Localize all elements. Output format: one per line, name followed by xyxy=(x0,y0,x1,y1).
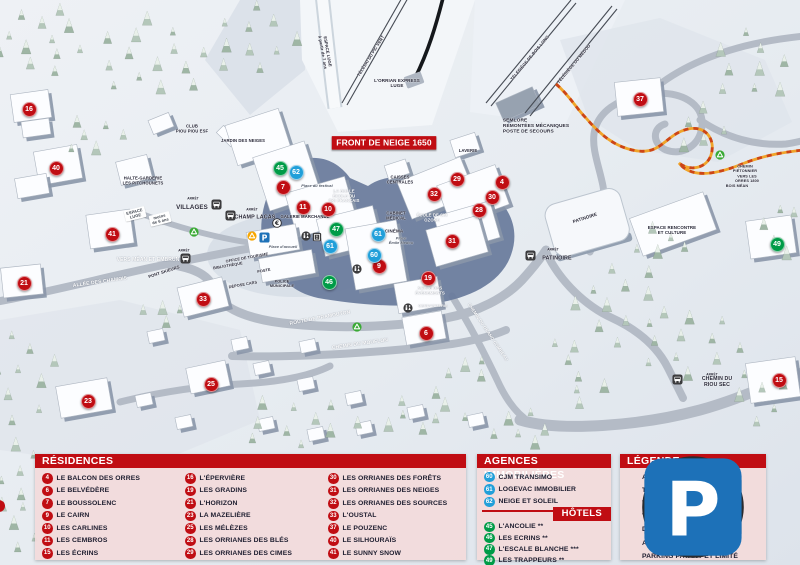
resort-map-poster: ESPACE LUGE à partir de 7 ansTÉLÉSKI DU … xyxy=(0,0,800,565)
legend-item-29: 29LES ORRIANES DES CIMES xyxy=(178,547,321,560)
marker-badge-19: 19 xyxy=(185,486,196,497)
marker-badge-29: 29 xyxy=(185,548,196,559)
legend-list: ARRET DE NAVETTETRI SELECTIFTRI SELECTIF… xyxy=(620,468,766,563)
legend-item-label: LES ÉCRINS xyxy=(57,550,99,557)
legend-item-21: 21L'HORIZON xyxy=(178,497,321,510)
legend-item-15: 15LES ÉCRINS xyxy=(35,547,178,560)
legend-item-23: 23LA MAZELIÈRE xyxy=(178,510,321,523)
legend-item-label: L'ÉPERVIÈRE xyxy=(200,475,246,482)
legend-item-label: LE SUNNY SNOW xyxy=(343,550,402,557)
legend-item-28: 28LES ORRIANES DES BLÉS xyxy=(178,535,321,548)
legend-item-label: LE BELVÉDÈRE xyxy=(57,487,110,494)
legend-item-label: LES MÉLÈZES xyxy=(200,525,248,532)
marker-badge-21: 21 xyxy=(185,498,196,509)
marker-badge-62: 62 xyxy=(484,497,495,508)
legend-item-label: L'ESCALE BLANCHE *** xyxy=(499,546,579,553)
legend-item-31: 31LES ORRIANES DES NEIGES xyxy=(321,485,464,498)
legend-item-47: 47L'ESCALE BLANCHE *** xyxy=(477,544,611,555)
legend-item-10: 10LES CARLINES xyxy=(35,522,178,535)
legend-item-label: LOGEVAC IMMOBILIER xyxy=(499,486,577,493)
legend-item-label: LES CEMBROS xyxy=(57,537,108,544)
marker-badge-60: 60 xyxy=(484,472,495,483)
legend-item-label: LES CARLINES xyxy=(57,525,108,532)
legend-item-30: 30LES ORRIANES DES FORÊTS xyxy=(321,472,464,485)
legend-panel: LÉGENDE ARRET DE NAVETTETRI SELECTIFTRI … xyxy=(620,454,766,560)
hotels-subheader: HÔTELS xyxy=(477,510,611,521)
hotels-title: HÔTELS xyxy=(553,507,611,521)
legend-item-37: 37LE POUZENC xyxy=(321,522,464,535)
legend-item-16: 16L'ÉPERVIÈRE xyxy=(178,472,321,485)
legend-item-6: 6LE BELVÉDÈRE xyxy=(35,485,178,498)
legend-item-41: 41LE SUNNY SNOW xyxy=(321,547,464,560)
marker-badge-11: 11 xyxy=(42,536,53,547)
residences-title: RÉSIDENCES xyxy=(35,454,466,468)
legend-item-19: 19LES GRADINS xyxy=(178,485,321,498)
legend-item-7: 7LE BOUSSOLENC xyxy=(35,497,178,510)
marker-badge-15: 15 xyxy=(42,548,53,559)
marker-badge-6: 6 xyxy=(42,486,53,497)
legend-item-45: 45L'ANCOLIE ** xyxy=(477,521,611,532)
marker-badge-30: 30 xyxy=(328,473,339,484)
legend-item-61: 61LOGEVAC IMMOBILIER xyxy=(477,483,611,495)
legend-item-9: 9LE CAIRN xyxy=(35,510,178,523)
legend-item-4: 4LE BALCON DES ORRES xyxy=(35,472,178,485)
marker-badge-61: 61 xyxy=(484,484,495,495)
marker-badge-23: 23 xyxy=(185,511,196,522)
marker-badge-37: 37 xyxy=(328,523,339,534)
legend-item-label: LE POUZENC xyxy=(343,525,388,532)
legend-item-label: CJM TRANSIMO xyxy=(499,474,553,481)
legend-item-label: LE SILHOURAÏS xyxy=(343,537,397,544)
residences-panel: RÉSIDENCES 4LE BALCON DES ORRES6LE BELVÉ… xyxy=(35,454,466,560)
legend-key-item: PPARKING PAYANT ET LIMITÉ xyxy=(620,550,766,563)
legend-item-label: LES GRADINS xyxy=(200,487,248,494)
marker-badge-10: 10 xyxy=(42,523,53,534)
marker-badge-7: 7 xyxy=(42,498,53,509)
marker-badge-47: 47 xyxy=(484,544,495,555)
legend-item-49: 49LES TRAPPEURS ** xyxy=(477,555,611,565)
legend-item-label: L'ANCOLIE ** xyxy=(499,523,544,530)
legend-item-33: 33L'OUSTAL xyxy=(321,510,464,523)
legend-item-label: NEIGE ET SOLEIL xyxy=(499,498,559,505)
legend-item-label: LES ORRIANES DES SOURCES xyxy=(343,500,448,507)
legend-item-label: L'OUSTAL xyxy=(343,512,377,519)
marker-badge-4: 4 xyxy=(42,473,53,484)
legend-item-label: LES ECRINS ** xyxy=(499,535,548,542)
marker-badge-28: 28 xyxy=(185,536,196,547)
residences-column: 16L'ÉPERVIÈRE19LES GRADINS21L'HORIZON23L… xyxy=(178,472,321,560)
marker-badge-16: 16 xyxy=(185,473,196,484)
residences-column: 30LES ORRIANES DES FORÊTS31LES ORRIANES … xyxy=(321,472,464,560)
legend-item-label: LES ORRIANES DES FORÊTS xyxy=(343,475,442,482)
agencies-title: AGENCES IMMOBILIÈRES xyxy=(477,454,611,468)
marker-badge-32: 32 xyxy=(328,498,339,509)
hotels-list: 45L'ANCOLIE **46LES ECRINS **47L'ESCALE … xyxy=(477,521,611,565)
marker-badge-49: 49 xyxy=(484,555,495,565)
marker-badge-46: 46 xyxy=(484,533,495,544)
legend-item-label: L'HORIZON xyxy=(200,500,238,507)
legend-item-label: LE BALCON DES ORRES xyxy=(57,475,140,482)
parking-icon: P xyxy=(626,551,637,562)
legend-item-32: 32LES ORRIANES DES SOURCES xyxy=(321,497,464,510)
legend-item-label: LA MAZELIÈRE xyxy=(200,512,251,519)
legend-item-label: LES ORRIANES DES CIMES xyxy=(200,550,292,557)
legend-item-46: 46LES ECRINS ** xyxy=(477,532,611,543)
marker-badge-40: 40 xyxy=(328,536,339,547)
marker-badge-9: 9 xyxy=(42,511,53,522)
legend-item-label: LE CAIRN xyxy=(57,512,90,519)
residences-column: 4LE BALCON DES ORRES6LE BELVÉDÈRE7LE BOU… xyxy=(35,472,178,560)
legend-item-label: LES ORRIANES DES NEIGES xyxy=(343,487,440,494)
agencies-panel: AGENCES IMMOBILIÈRES 60CJM TRANSIMO61LOG… xyxy=(477,454,611,560)
residences-columns: 4LE BALCON DES ORRES6LE BELVÉDÈRE7LE BOU… xyxy=(35,468,466,560)
legend-item-40: 40LE SILHOURAÏS xyxy=(321,535,464,548)
legend-item-label: LES TRAPPEURS ** xyxy=(499,557,565,564)
marker-badge-33: 33 xyxy=(328,511,339,522)
legend-item-11: 11LES CEMBROS xyxy=(35,535,178,548)
legend-item-label: LES ORRIANES DES BLÉS xyxy=(200,537,289,544)
marker-badge-41: 41 xyxy=(328,548,339,559)
marker-badge-31: 31 xyxy=(328,486,339,497)
marker-badge-25: 25 xyxy=(185,523,196,534)
marker-badge-45: 45 xyxy=(484,522,495,533)
legend-item-label: LE BOUSSOLENC xyxy=(57,500,117,507)
legend-item-25: 25LES MÉLÈZES xyxy=(178,522,321,535)
svg-text:P: P xyxy=(665,465,720,553)
